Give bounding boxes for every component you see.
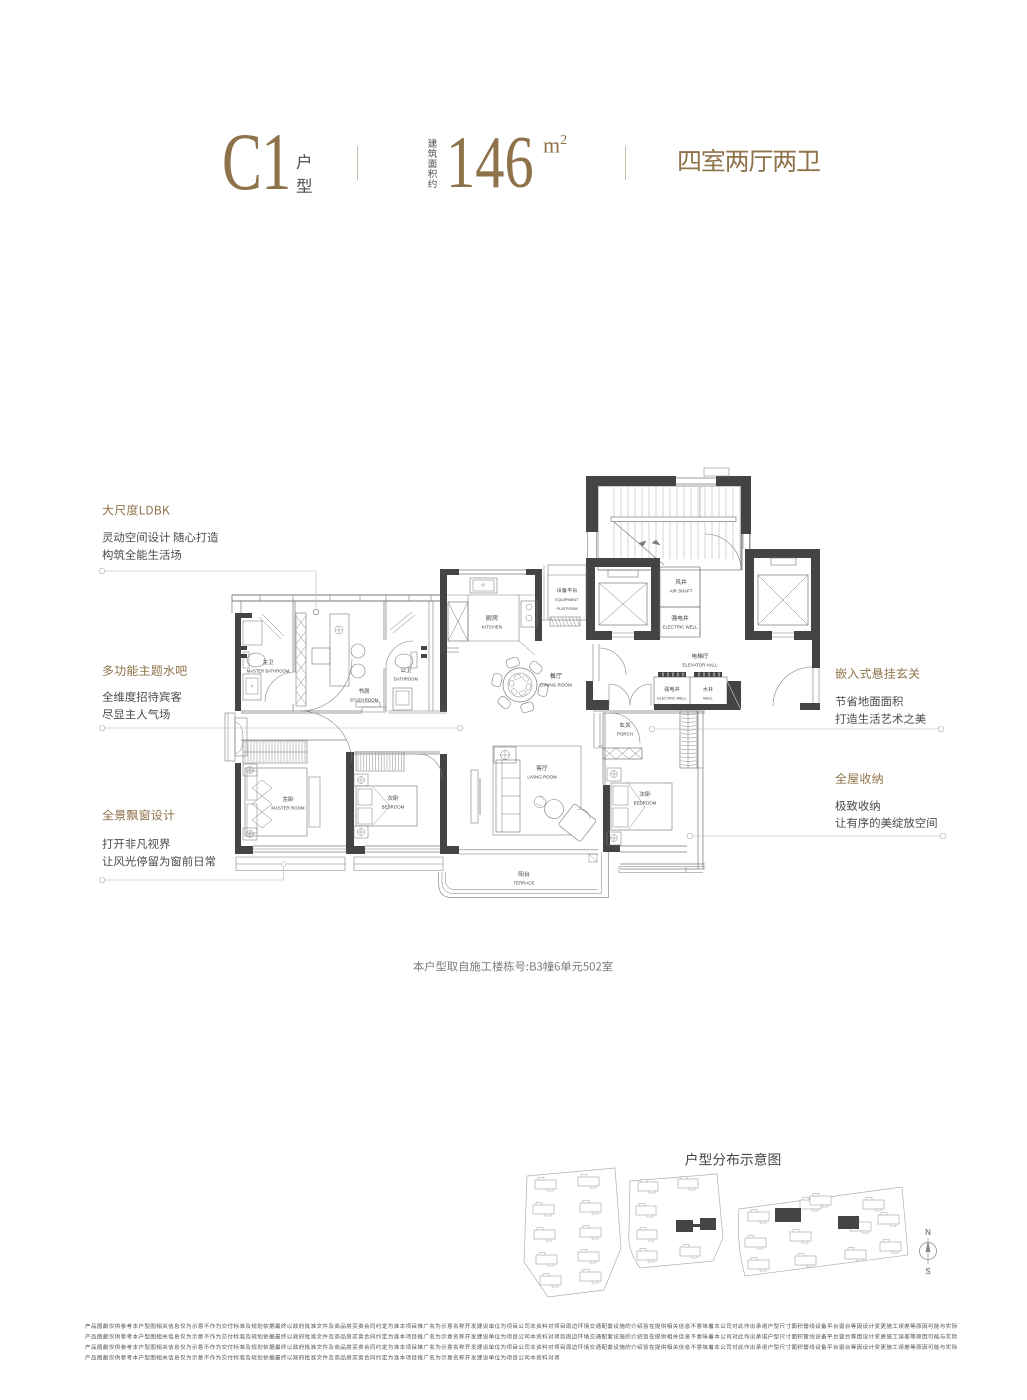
svg-text:BATHROOM: BATHROOM bbox=[394, 677, 418, 682]
svg-text:LIVING ROOM: LIVING ROOM bbox=[527, 775, 557, 780]
svg-text:MASTER ROOM: MASTER ROOM bbox=[271, 806, 305, 811]
svg-text:N: N bbox=[925, 1228, 931, 1237]
svg-text:KITCHEN: KITCHEN bbox=[482, 625, 502, 630]
svg-text:TERRACE: TERRACE bbox=[514, 881, 535, 886]
svg-text:STUDYROOM: STUDYROOM bbox=[350, 698, 379, 703]
svg-text:AIR SHAFT: AIR SHAFT bbox=[670, 589, 693, 594]
svg-text:S: S bbox=[925, 1267, 930, 1276]
svg-text:PORCH: PORCH bbox=[617, 732, 633, 737]
svg-text:ELECTRIC WELL: ELECTRIC WELL bbox=[663, 625, 698, 630]
svg-text:PLATFORM: PLATFORM bbox=[557, 606, 578, 611]
svg-text:WELL: WELL bbox=[703, 697, 713, 701]
svg-text:BEDROOM: BEDROOM bbox=[382, 805, 405, 810]
svg-text:ELECTRIC WELL: ELECTRIC WELL bbox=[657, 697, 686, 701]
svg-text:MASTER BATHROOM: MASTER BATHROOM bbox=[247, 669, 290, 674]
svg-text:BEDROOM: BEDROOM bbox=[634, 801, 657, 806]
svg-text:DINING ROOM: DINING ROOM bbox=[540, 683, 572, 688]
svg-text:ELEVATOR HALL: ELEVATOR HALL bbox=[683, 663, 718, 668]
svg-text:EQUIPMENT: EQUIPMENT bbox=[555, 597, 579, 602]
